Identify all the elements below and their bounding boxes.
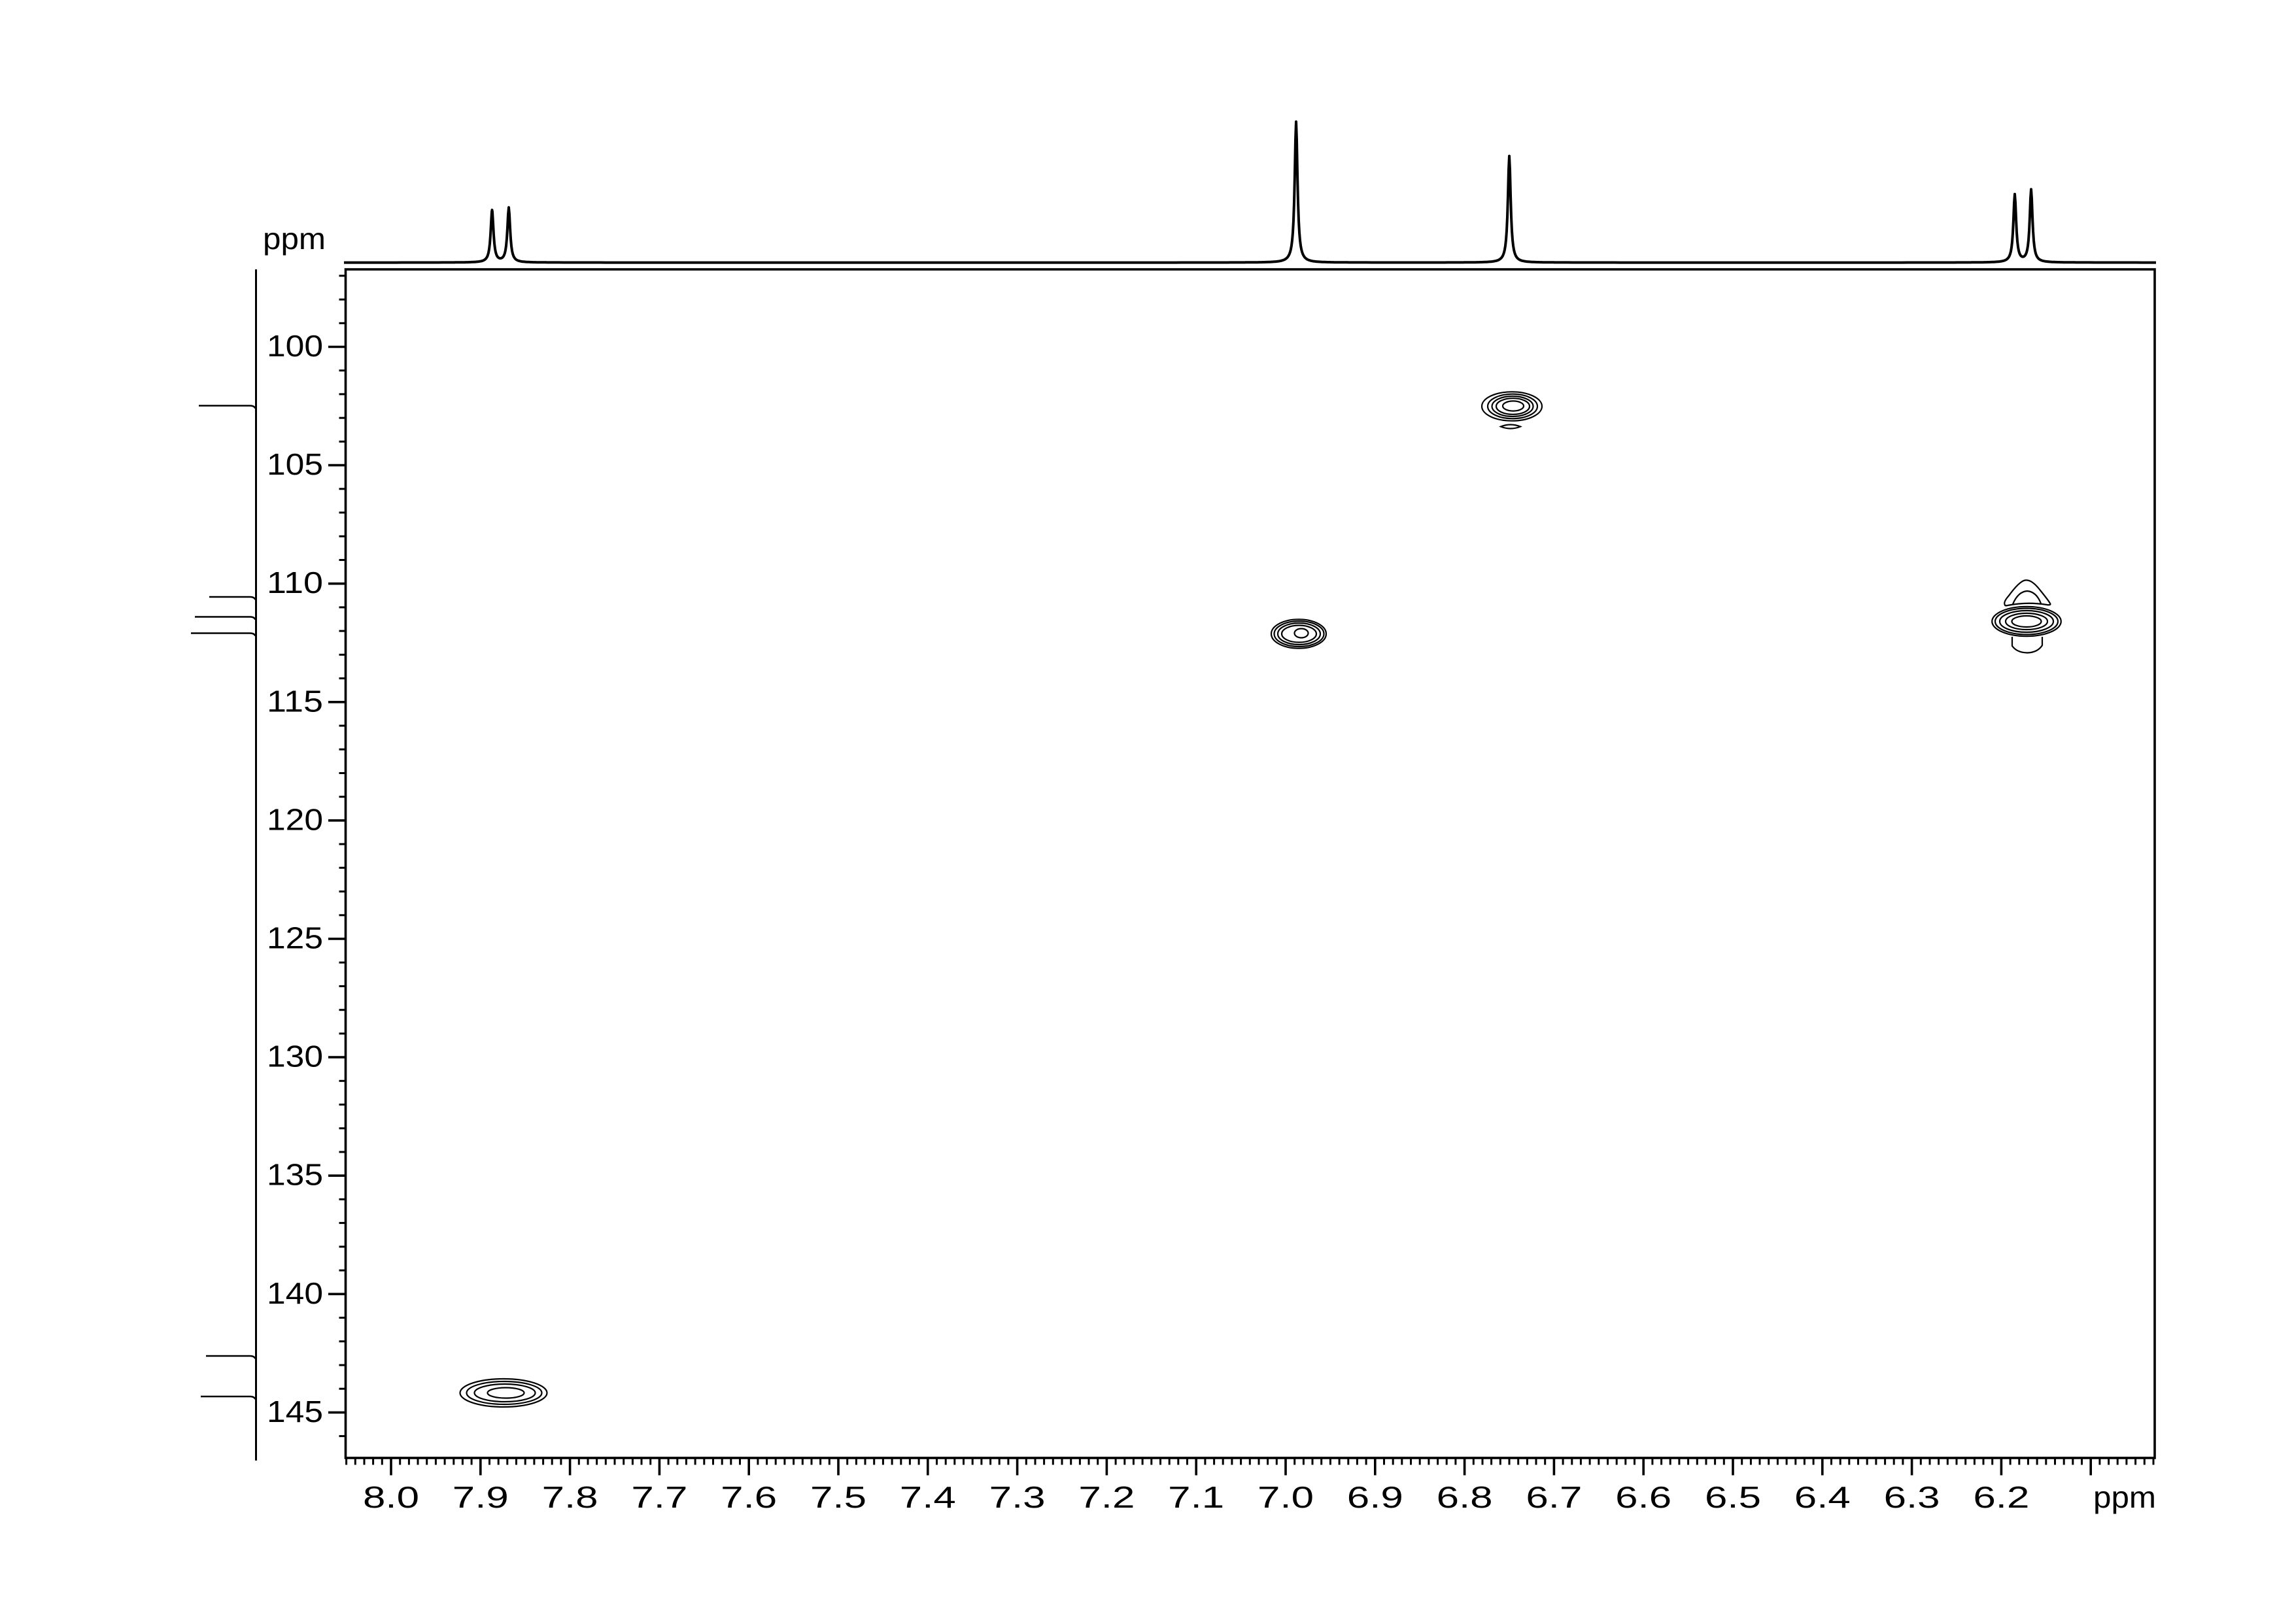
svg-text:6.2: 6.2 — [1973, 1480, 2029, 1514]
svg-text:7.7: 7.7 — [631, 1480, 687, 1514]
svg-text:6.5: 6.5 — [1705, 1480, 1761, 1514]
svg-text:8.0: 8.0 — [363, 1480, 419, 1514]
svg-text:7.0: 7.0 — [1258, 1480, 1314, 1514]
svg-text:115: 115 — [267, 684, 323, 718]
svg-text:6.7: 6.7 — [1526, 1480, 1582, 1514]
svg-text:105: 105 — [267, 447, 323, 481]
svg-text:7.6: 7.6 — [721, 1480, 777, 1514]
svg-text:6.8: 6.8 — [1437, 1480, 1493, 1514]
svg-text:7.5: 7.5 — [810, 1480, 866, 1514]
svg-text:135: 135 — [267, 1158, 323, 1192]
svg-text:130: 130 — [267, 1040, 323, 1074]
svg-text:6.3: 6.3 — [1884, 1480, 1940, 1514]
svg-text:6.4: 6.4 — [1794, 1480, 1851, 1514]
svg-text:110: 110 — [267, 566, 323, 600]
svg-text:7.9: 7.9 — [453, 1480, 509, 1514]
svg-text:100: 100 — [267, 329, 323, 363]
svg-text:125: 125 — [267, 921, 323, 955]
svg-text:140: 140 — [267, 1276, 323, 1310]
svg-text:7.8: 7.8 — [542, 1480, 598, 1514]
svg-text:ppm: ppm — [2093, 1480, 2156, 1514]
svg-text:ppm: ppm — [263, 222, 326, 256]
svg-text:7.2: 7.2 — [1078, 1480, 1135, 1514]
svg-text:120: 120 — [267, 802, 323, 836]
svg-text:145: 145 — [267, 1395, 323, 1429]
svg-text:6.9: 6.9 — [1347, 1480, 1403, 1514]
svg-text:6.6: 6.6 — [1615, 1480, 1671, 1514]
svg-text:7.4: 7.4 — [900, 1480, 956, 1514]
svg-text:7.3: 7.3 — [989, 1480, 1046, 1514]
svg-text:7.1: 7.1 — [1168, 1480, 1224, 1514]
